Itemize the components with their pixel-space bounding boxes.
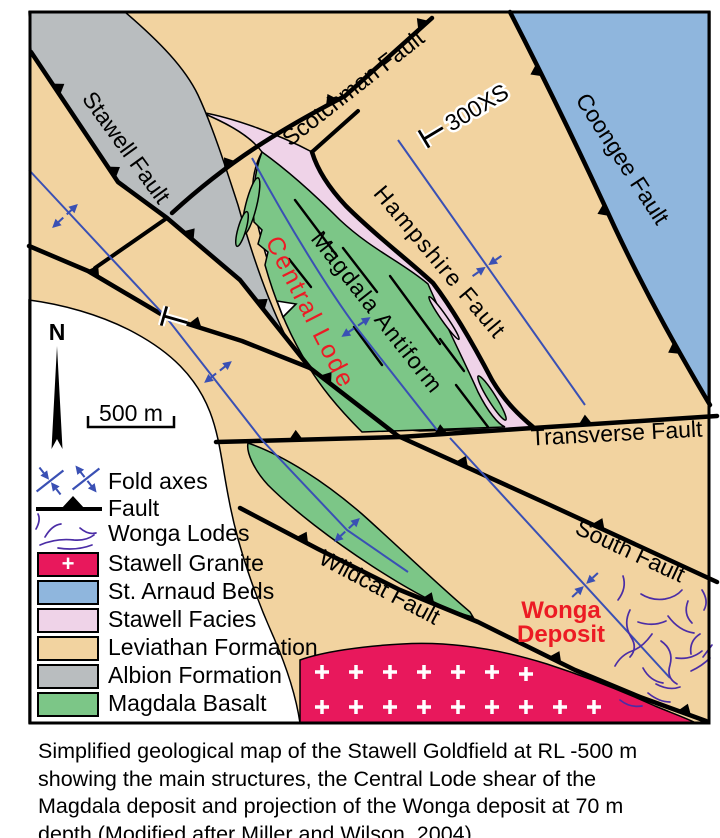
caption-line: showing the main structures, the Central… [38, 766, 710, 794]
legend-label-stawell-facies: Stawell Facies [108, 606, 256, 632]
legend-swatch-leviathan [38, 637, 98, 660]
label-wonga-deposit-line1: Wonga [521, 597, 601, 624]
legend-label-fault: Fault [108, 495, 160, 521]
caption-line: depth (Modified after Miller and Wilson,… [38, 821, 710, 838]
legend-label-leviathan: Leviathan Formation [108, 634, 318, 660]
caption-line: Magdala deposit and projection of the Wo… [38, 793, 710, 821]
scale-bar-label: 500 m [99, 400, 163, 426]
legend-label-stawell-granite: Stawell Granite [108, 550, 264, 576]
scale-bar: 500 m [88, 400, 174, 427]
legend-label-wonga-lodes: Wonga Lodes [108, 520, 250, 546]
legend-granite-plus: + [62, 551, 75, 576]
caption: Simplified geological map of the Stawell… [38, 738, 710, 838]
figure-page: 300XS Stawell Fault Scotchman Fault Hamp… [0, 0, 720, 838]
legend-label-albion: Albion Formation [108, 662, 282, 688]
legend-label-magdala: Magdala Basalt [108, 690, 267, 716]
label-wonga-deposit-line2: Deposit [517, 621, 605, 648]
legend-swatch-magdala [38, 693, 98, 716]
caption-line: Simplified geological map of the Stawell… [38, 738, 710, 766]
legend-swatch-albion [38, 665, 98, 688]
legend-swatch-stawell-facies [38, 609, 98, 632]
geological-map: 300XS Stawell Fault Scotchman Fault Hamp… [0, 0, 720, 838]
north-label: N [49, 319, 66, 345]
legend-swatch-st-arnaud [38, 581, 98, 604]
legend-label-st-arnaud: St. Arnaud Beds [108, 578, 274, 604]
legend-label-fold-axes: Fold axes [108, 468, 208, 494]
